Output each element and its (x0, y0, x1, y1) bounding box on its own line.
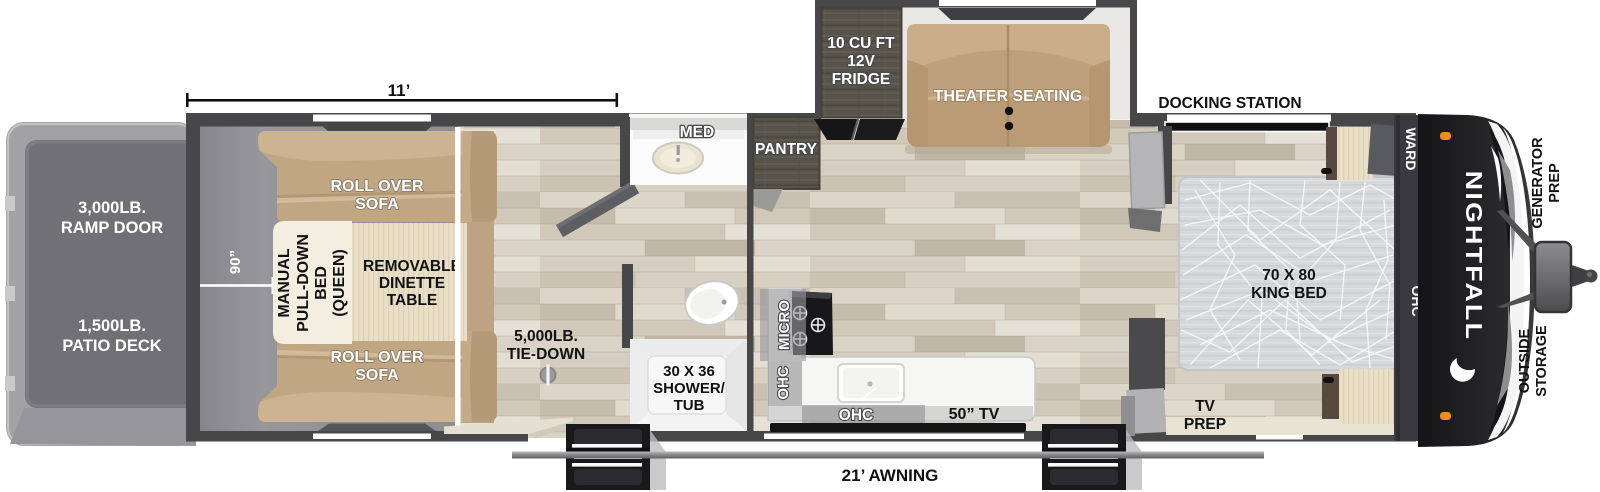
svg-text:WARD: WARD (1403, 128, 1419, 171)
svg-text:21’ AWNING: 21’ AWNING (842, 466, 939, 485)
svg-text:90”: 90” (227, 250, 244, 274)
svg-text:TIE-DOWN: TIE-DOWN (507, 346, 585, 363)
svg-text:OUTSIDE: OUTSIDE (1517, 328, 1533, 393)
svg-text:ROLL OVER: ROLL OVER (330, 349, 423, 366)
svg-text:DINETTE: DINETTE (379, 275, 445, 292)
svg-text:MED: MED (680, 124, 714, 141)
svg-text:10 CU FT: 10 CU FT (827, 35, 895, 52)
svg-text:TUB: TUB (674, 397, 705, 414)
svg-text:OHC: OHC (839, 407, 873, 424)
svg-text:PREP: PREP (1547, 163, 1563, 203)
svg-text:PULL-DOWN: PULL-DOWN (295, 234, 312, 332)
svg-text:PANTRY: PANTRY (755, 141, 818, 158)
svg-text:BED: BED (313, 266, 330, 300)
svg-text:30 X 36: 30 X 36 (663, 363, 715, 380)
svg-text:11’: 11’ (388, 81, 411, 100)
svg-text:(QUEEN): (QUEEN) (331, 249, 348, 317)
svg-text:MANUAL: MANUAL (276, 248, 293, 318)
svg-text:DOCKING STATION: DOCKING STATION (1158, 95, 1301, 112)
svg-text:RAMP DOOR: RAMP DOOR (61, 219, 163, 237)
svg-text:KING BED: KING BED (1251, 285, 1327, 302)
svg-text:5,000LB.: 5,000LB. (514, 328, 578, 345)
svg-text:PREP: PREP (1184, 416, 1226, 433)
svg-text:SOFA: SOFA (355, 196, 399, 213)
svg-text:12V: 12V (847, 53, 875, 70)
svg-text:OHC: OHC (775, 366, 792, 400)
svg-text:ROLL OVER: ROLL OVER (330, 178, 423, 195)
svg-text:SOFA: SOFA (355, 367, 399, 384)
svg-text:MICRO: MICRO (776, 300, 793, 350)
svg-text:50” TV: 50” TV (949, 406, 1000, 423)
svg-text:REMOVABLE: REMOVABLE (363, 258, 461, 275)
svg-text:PATIO DECK: PATIO DECK (62, 337, 161, 355)
svg-text:TABLE: TABLE (387, 292, 438, 309)
svg-text:THEATER SEATING: THEATER SEATING (934, 88, 1083, 105)
svg-text:NIGHTFALL: NIGHTFALL (1460, 171, 1486, 341)
svg-text:1,500LB.: 1,500LB. (78, 317, 146, 335)
svg-text:FRIDGE: FRIDGE (832, 71, 891, 88)
svg-text:SHOWER/: SHOWER/ (653, 380, 726, 397)
svg-text:3,000LB.: 3,000LB. (78, 199, 146, 217)
svg-text:70 X 80: 70 X 80 (1262, 267, 1315, 284)
svg-text:GENERATOR: GENERATOR (1530, 137, 1546, 229)
svg-text:TV: TV (1195, 398, 1215, 415)
svg-text:STORAGE: STORAGE (1534, 325, 1550, 397)
